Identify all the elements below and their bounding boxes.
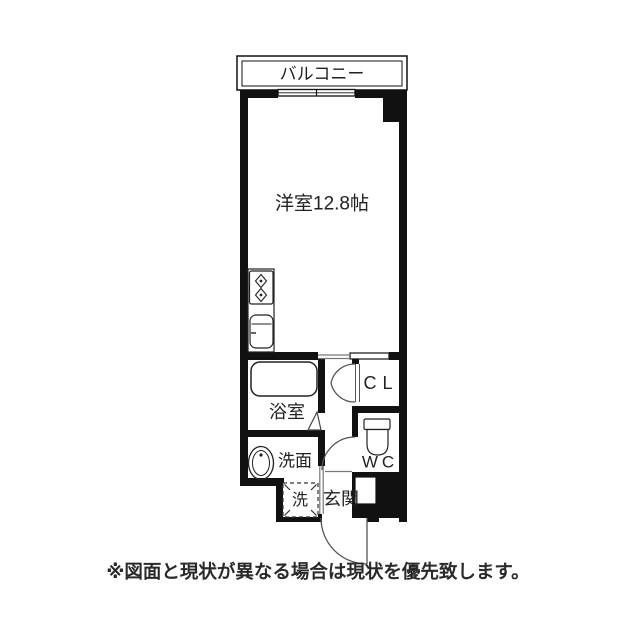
washroom-label: 洗面	[278, 453, 312, 470]
closet-doors	[331, 364, 360, 402]
floor-plan: バルコニー 洋室12.8帖 浴室 洗面 CL WC 玄関 洗 ※図面と現状が異な…	[0, 0, 640, 640]
bathroom-door-mark	[308, 412, 321, 430]
thin-wall-above-closet	[350, 353, 389, 359]
toilet-label: WC	[358, 454, 398, 471]
closet-label: CL	[357, 374, 398, 392]
hall-sliding-door	[318, 355, 350, 359]
toilet-icon	[364, 419, 390, 455]
balcony-label: バルコニー	[280, 66, 365, 83]
balcony-window	[278, 90, 355, 97]
floor-plan-drawing	[0, 0, 640, 640]
bathroom-label: 浴室	[269, 403, 305, 421]
bathtub-icon	[251, 362, 317, 396]
wc-door-arc	[322, 437, 355, 470]
kitchen-sink-icon	[250, 315, 273, 348]
washbasin-icon	[249, 447, 274, 480]
laundry-label: 洗	[292, 493, 308, 509]
stove-icon	[250, 271, 274, 304]
disclaimer-text: ※図面と現状が異なる場合は現状を優先致します。	[106, 563, 529, 582]
main-room-label: 洋室12.8帖	[275, 195, 369, 214]
entry-door-arc	[321, 518, 367, 564]
entrance-label: 玄関	[323, 490, 359, 508]
